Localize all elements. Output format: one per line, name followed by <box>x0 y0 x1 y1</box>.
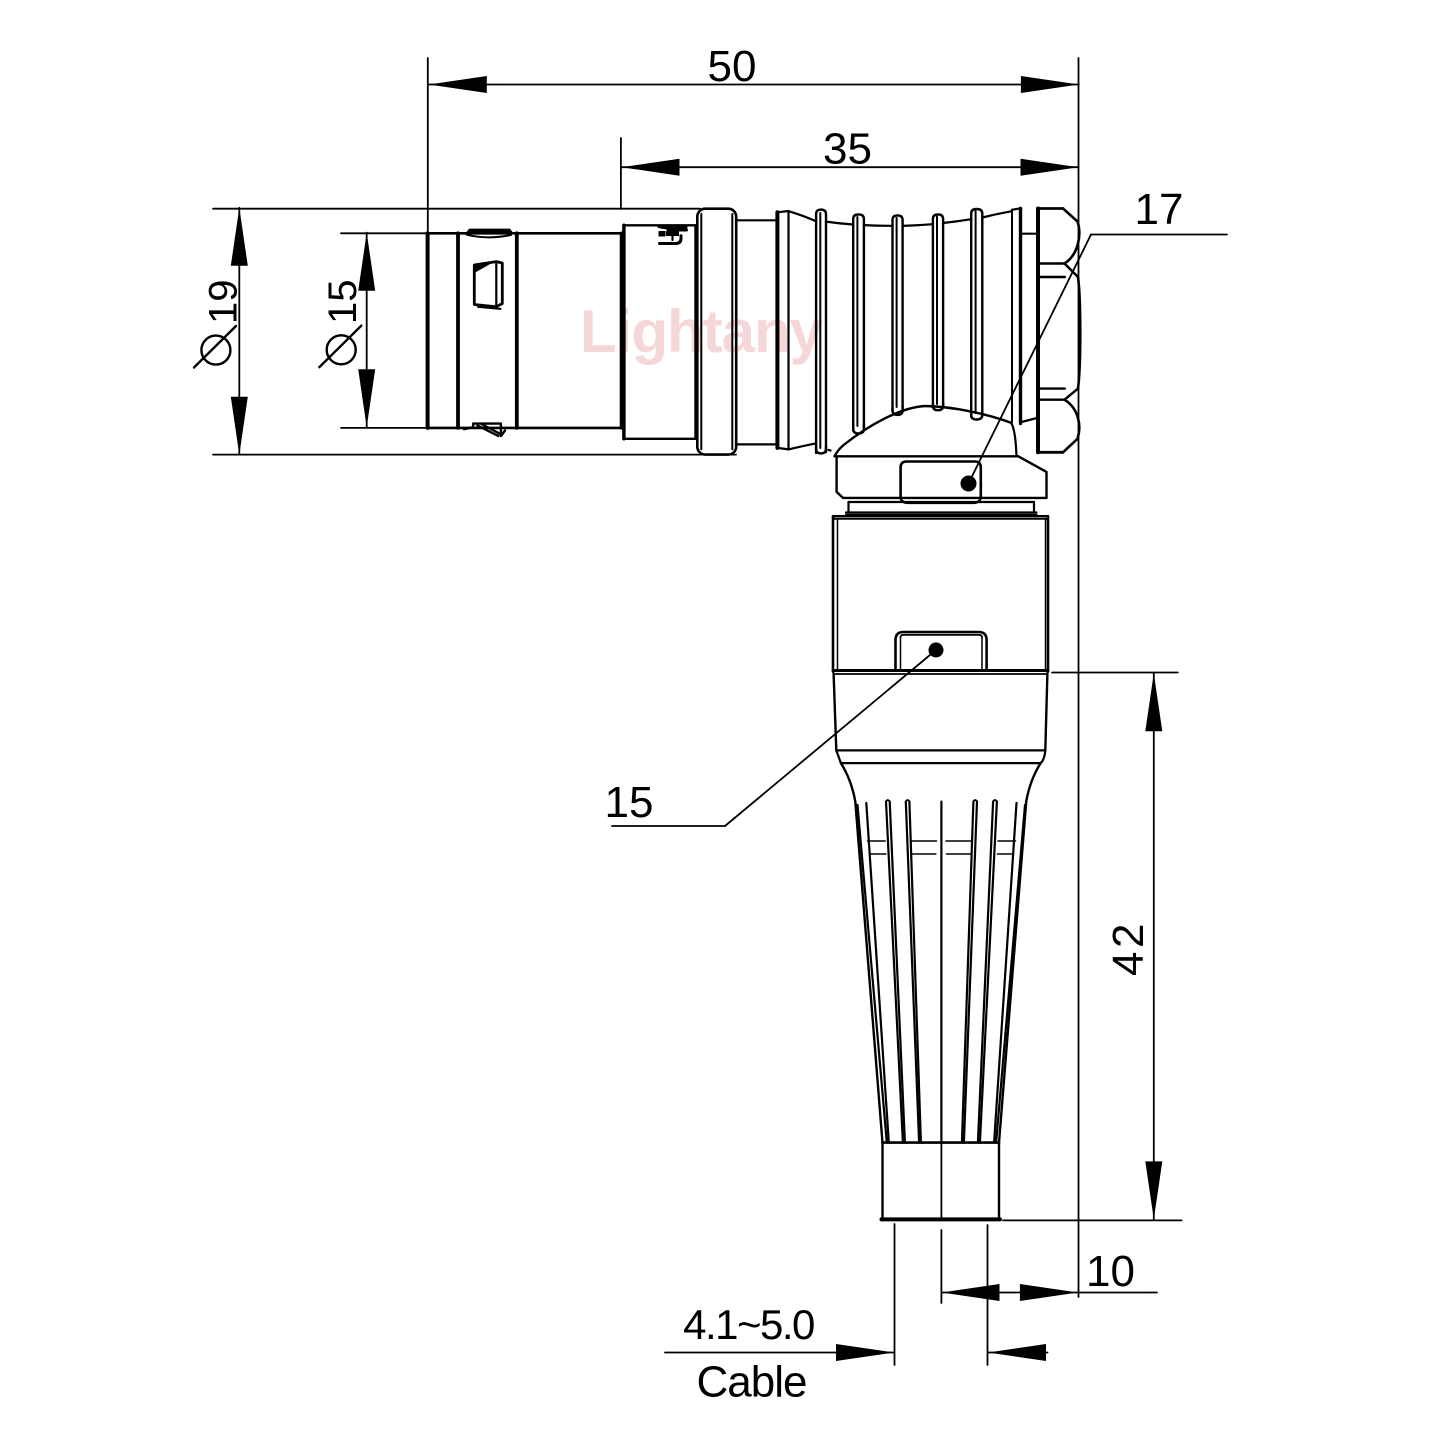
svg-text:19: 19 <box>202 280 246 325</box>
svg-text:Cable: Cable <box>697 1358 807 1407</box>
svg-text:17: 17 <box>1135 185 1184 234</box>
svg-text:35: 35 <box>823 125 872 174</box>
svg-text:10: 10 <box>1086 1247 1135 1296</box>
svg-text:15: 15 <box>321 280 365 325</box>
svg-text:50: 50 <box>708 42 757 91</box>
svg-text:15: 15 <box>605 778 654 827</box>
svg-text:4.1~5.0: 4.1~5.0 <box>683 1301 814 1348</box>
svg-text:42: 42 <box>1104 920 1153 976</box>
